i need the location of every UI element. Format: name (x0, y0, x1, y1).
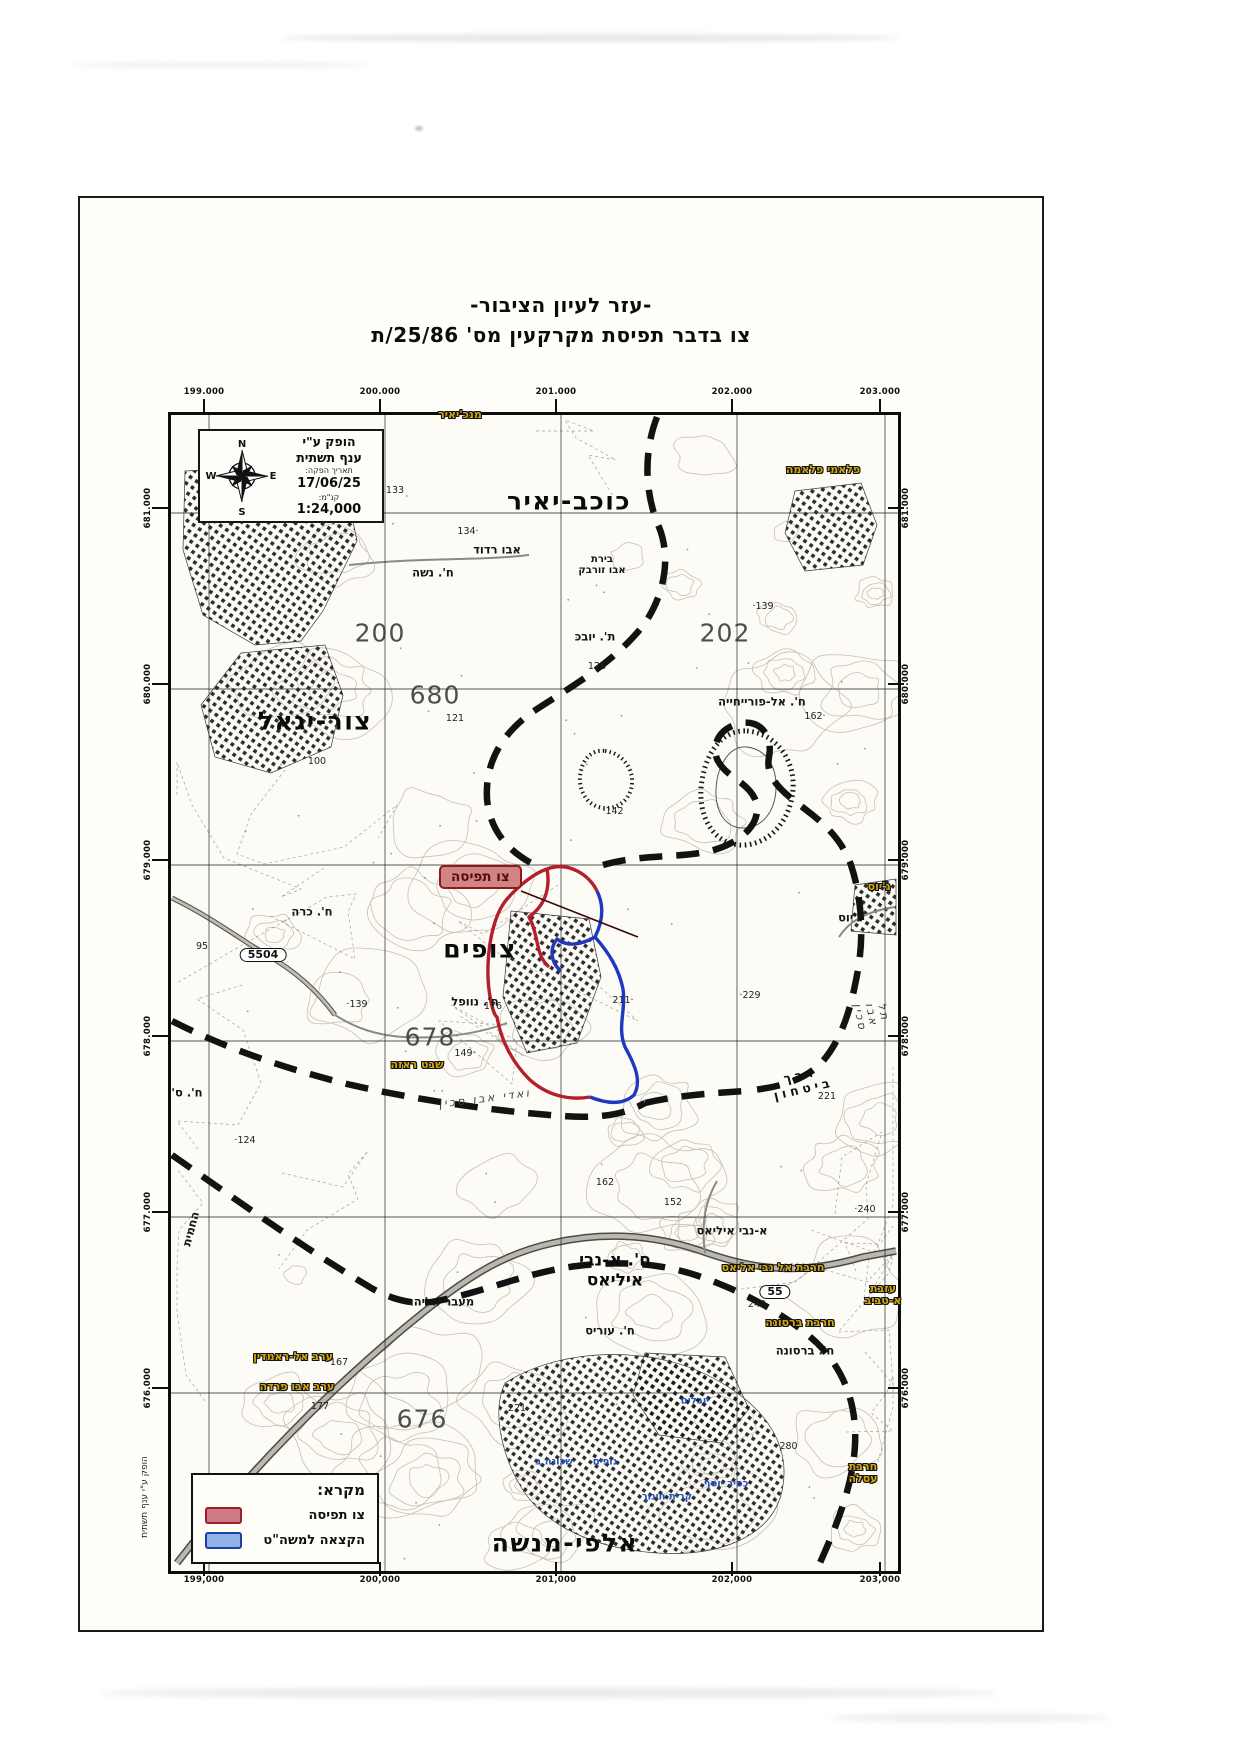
scale-value: 1:24,000 (280, 502, 378, 518)
title-line-1: -עזר לעיון הציבור- (80, 290, 1042, 320)
grid-tick (152, 507, 168, 509)
legend-row-seizure: צו תפיסה (205, 1503, 365, 1528)
legend: מקרא: צו תפיסה הקצאה למשה"ט (191, 1473, 379, 1564)
grid-tick (203, 399, 205, 413)
seizure-order-callout: צו תפיסה (439, 865, 522, 889)
scale-label: קנ"מ: (280, 494, 378, 503)
map-drawing (171, 415, 898, 1571)
grid-tick (152, 1035, 168, 1037)
grid-coordinate-label: 203.000 (860, 387, 901, 397)
grid-tick (888, 1387, 904, 1389)
scan-smudge (830, 1714, 1110, 1722)
grid-tick (879, 1562, 881, 1576)
grid-tick (888, 1035, 904, 1037)
compass-e: E (270, 471, 277, 482)
legend-label: הקצאה למשה"ט (263, 1533, 365, 1548)
date-value: 17/06/25 (280, 476, 378, 492)
scan-smudge (280, 34, 900, 42)
grid-coordinate-label: 199.000 (184, 387, 225, 397)
seizure-swatch (205, 1507, 242, 1524)
grid-tick (731, 1562, 733, 1576)
allocation-swatch (205, 1532, 242, 1549)
grid-tick (888, 859, 904, 861)
side-production-note: הופק ע"י ענף תשתית (140, 1432, 150, 1562)
date-label: תאריך הפקה: (280, 467, 378, 476)
legend-row-allocation: הקצאה למשה"ט (205, 1528, 365, 1553)
grid-coordinate-label: 203,000 (860, 1575, 901, 1585)
grid-tick (152, 859, 168, 861)
grid-tick (379, 1562, 381, 1576)
compass-n: N (238, 439, 246, 450)
map: כוכב-יאירצור-יגאלצופיםח'. א-נבי איליאסאל… (168, 412, 901, 1574)
grid-coordinate-label: 201,000 (536, 1575, 577, 1585)
grid-tick (888, 683, 904, 685)
grid-tick (731, 399, 733, 413)
grid-coordinate-label: 199,000 (184, 1575, 225, 1585)
legend-title: מקרא: (205, 1481, 365, 1499)
grid-tick (203, 1562, 205, 1576)
grid-tick (879, 399, 881, 413)
legend-label: צו תפיסה (308, 1508, 365, 1523)
produced-by-line2: ענף תשתית (280, 450, 378, 466)
grid-tick (555, 399, 557, 413)
compass-w: W (205, 471, 216, 482)
grid-tick (152, 1211, 168, 1213)
grid-coordinate-label: 201.000 (536, 387, 577, 397)
scan-smudge (70, 62, 370, 68)
scan-smudge (100, 1688, 1000, 1698)
compass-s: S (238, 507, 245, 518)
scanned-page: -עזר לעיון הציבור- צו בדבר תפיסת מקרקעין… (0, 0, 1240, 1755)
title-line-2: צו בדבר תפיסת מקרקעין מס' 25/86/ת (80, 320, 1042, 350)
grid-coordinate-label: 200.000 (360, 387, 401, 397)
scan-smudge (415, 126, 423, 131)
document-title: -עזר לעיון הציבור- צו בדבר תפיסת מקרקעין… (80, 290, 1042, 350)
grid-tick (152, 683, 168, 685)
grid-coordinate-label: 202.000 (712, 387, 753, 397)
grid-tick (555, 1562, 557, 1576)
grid-tick (888, 1211, 904, 1213)
grid-coordinate-label: 200,000 (360, 1575, 401, 1585)
grid-tick (152, 1387, 168, 1389)
page-border: -עזר לעיון הציבור- צו בדבר תפיסת מקרקעין… (78, 196, 1044, 1632)
map-info-box: N E S W הופק ע"י ענף תשתית תאריך הפקה: 1… (198, 429, 384, 523)
grid-tick (379, 399, 381, 413)
grid-coordinate-label: 202,000 (712, 1575, 753, 1585)
produced-by-line1: הופק ע"י (280, 434, 378, 450)
grid-tick (888, 507, 904, 509)
compass-rose-icon: N E S W (204, 433, 280, 519)
